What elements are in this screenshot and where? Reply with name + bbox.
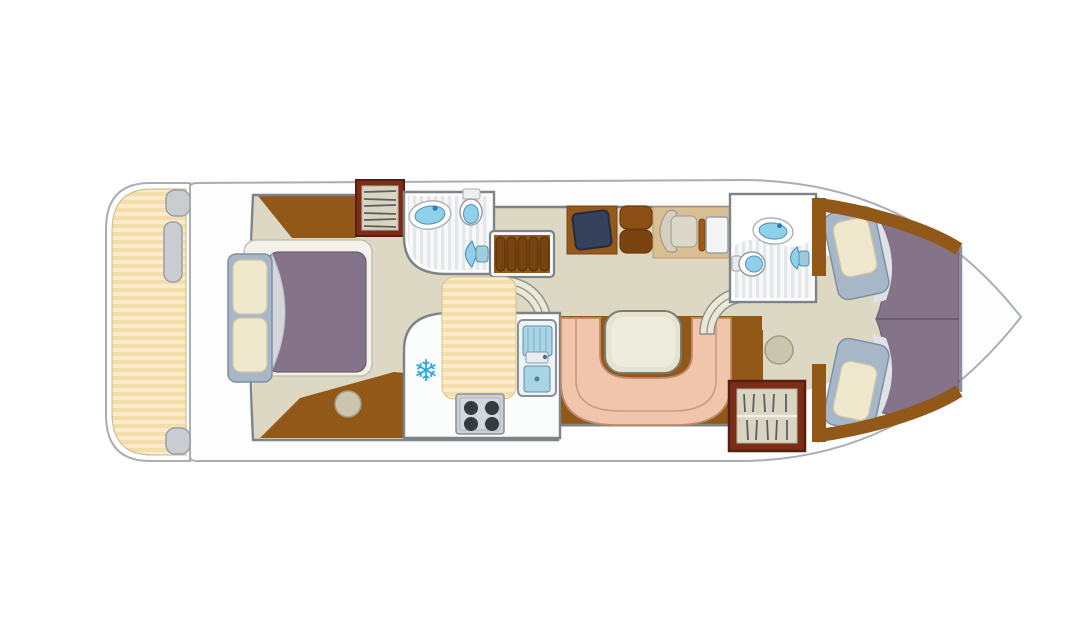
bathroom-aft <box>404 189 494 274</box>
tv-screen <box>572 210 612 250</box>
helm-chair <box>660 210 697 252</box>
stern-cleat <box>166 190 190 216</box>
stove-burner <box>464 401 478 415</box>
bathroom-fwd <box>730 194 816 302</box>
stove-burner <box>485 401 499 415</box>
floor-plan-canvas: ❄ <box>0 0 1092 640</box>
stair-treads <box>496 237 549 271</box>
boat-floor-plan: ❄ <box>0 0 1092 640</box>
side-console <box>706 217 728 253</box>
toilet <box>460 189 482 225</box>
fridge-snowflake-icon: ❄ <box>413 354 438 389</box>
bed-pillow <box>233 318 267 372</box>
stern-ladder <box>164 222 182 282</box>
wood-floor-passage <box>733 330 763 383</box>
stern-cleat <box>166 428 190 454</box>
bed-pillow <box>233 260 267 314</box>
aft-cabin-stool <box>335 391 361 417</box>
stove <box>456 394 504 434</box>
wardrobe-aft <box>356 180 404 236</box>
stove-burner <box>485 417 499 431</box>
galley-floor <box>442 277 516 399</box>
desk-rail <box>699 219 705 251</box>
stove-burner <box>464 417 478 431</box>
saloon-stool <box>765 336 793 364</box>
wardrobe-fwd <box>729 381 805 451</box>
helm-station <box>567 206 730 258</box>
table-top-highlight <box>611 317 675 367</box>
swim-platform <box>106 183 190 461</box>
galley-sink-unit <box>518 320 556 396</box>
